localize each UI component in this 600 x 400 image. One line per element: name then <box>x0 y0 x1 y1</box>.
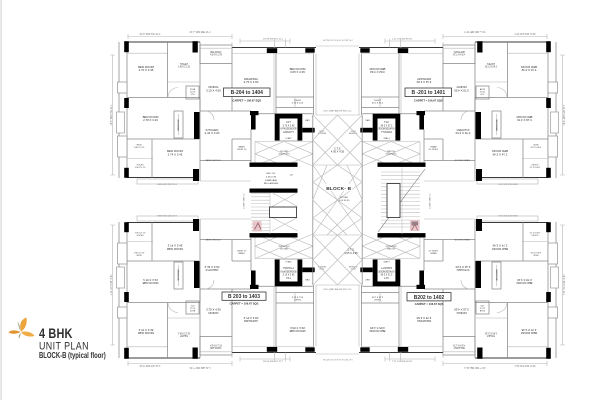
svg-text:4.5X1.5 M: 4.5X1.5 M <box>266 177 276 179</box>
svg-text:B -201 to 1401: B -201 to 1401 <box>411 90 445 96</box>
svg-text:CARPET = 106.67 SQS: CARPET = 106.67 SQS <box>414 98 443 102</box>
svg-text:MID.LANDING: MID.LANDING <box>264 182 279 185</box>
svg-text:BLOCK-B (typical floor): BLOCK-B (typical floor) <box>39 350 106 360</box>
svg-text:4.05 X 4.35: 4.05 X 4.35 <box>331 150 345 154</box>
svg-text:B 203 to 1403: B 203 to 1403 <box>228 294 260 300</box>
svg-text:4 BHK: 4 BHK <box>39 326 73 342</box>
svg-text:BLOCK- B: BLOCK- B <box>326 186 351 192</box>
svg-text:B202 to 1402: B202 to 1402 <box>414 295 445 301</box>
svg-text:MID. LVL: MID. LVL <box>267 173 277 175</box>
svg-text:LOBBY W/D 2.1: LOBBY W/D 2.1 <box>430 193 432 209</box>
svg-text:LOBBY W/D 2.1: LOBBY W/D 2.1 <box>243 193 245 209</box>
svg-text:STAIRCASE: STAIRCASE <box>265 179 278 182</box>
svg-text:CARPET = 106.67 SQS: CARPET = 106.67 SQS <box>415 302 444 306</box>
svg-text:4.05 X 4.35: 4.05 X 4.35 <box>344 251 358 255</box>
svg-text:DN. LOBBY ABOVE W/D 21-1: DN. LOBBY ABOVE W/D 21-1 <box>323 288 352 291</box>
svg-text:FOYER: FOYER <box>340 197 348 199</box>
svg-text:4.24 X3.35: 4.24 X3.35 <box>339 200 350 202</box>
svg-text:B-204 to 1404: B-204 to 1404 <box>231 90 263 96</box>
svg-text:DN. LOBBY ABOVE W/D 21-1: DN. LOBBY ABOVE W/D 21-1 <box>323 110 352 113</box>
svg-text:CARPET = 106.67 SQS: CARPET = 106.67 SQS <box>232 98 261 102</box>
svg-text:CARPET = 106.67 SQS: CARPET = 106.67 SQS <box>230 302 259 306</box>
